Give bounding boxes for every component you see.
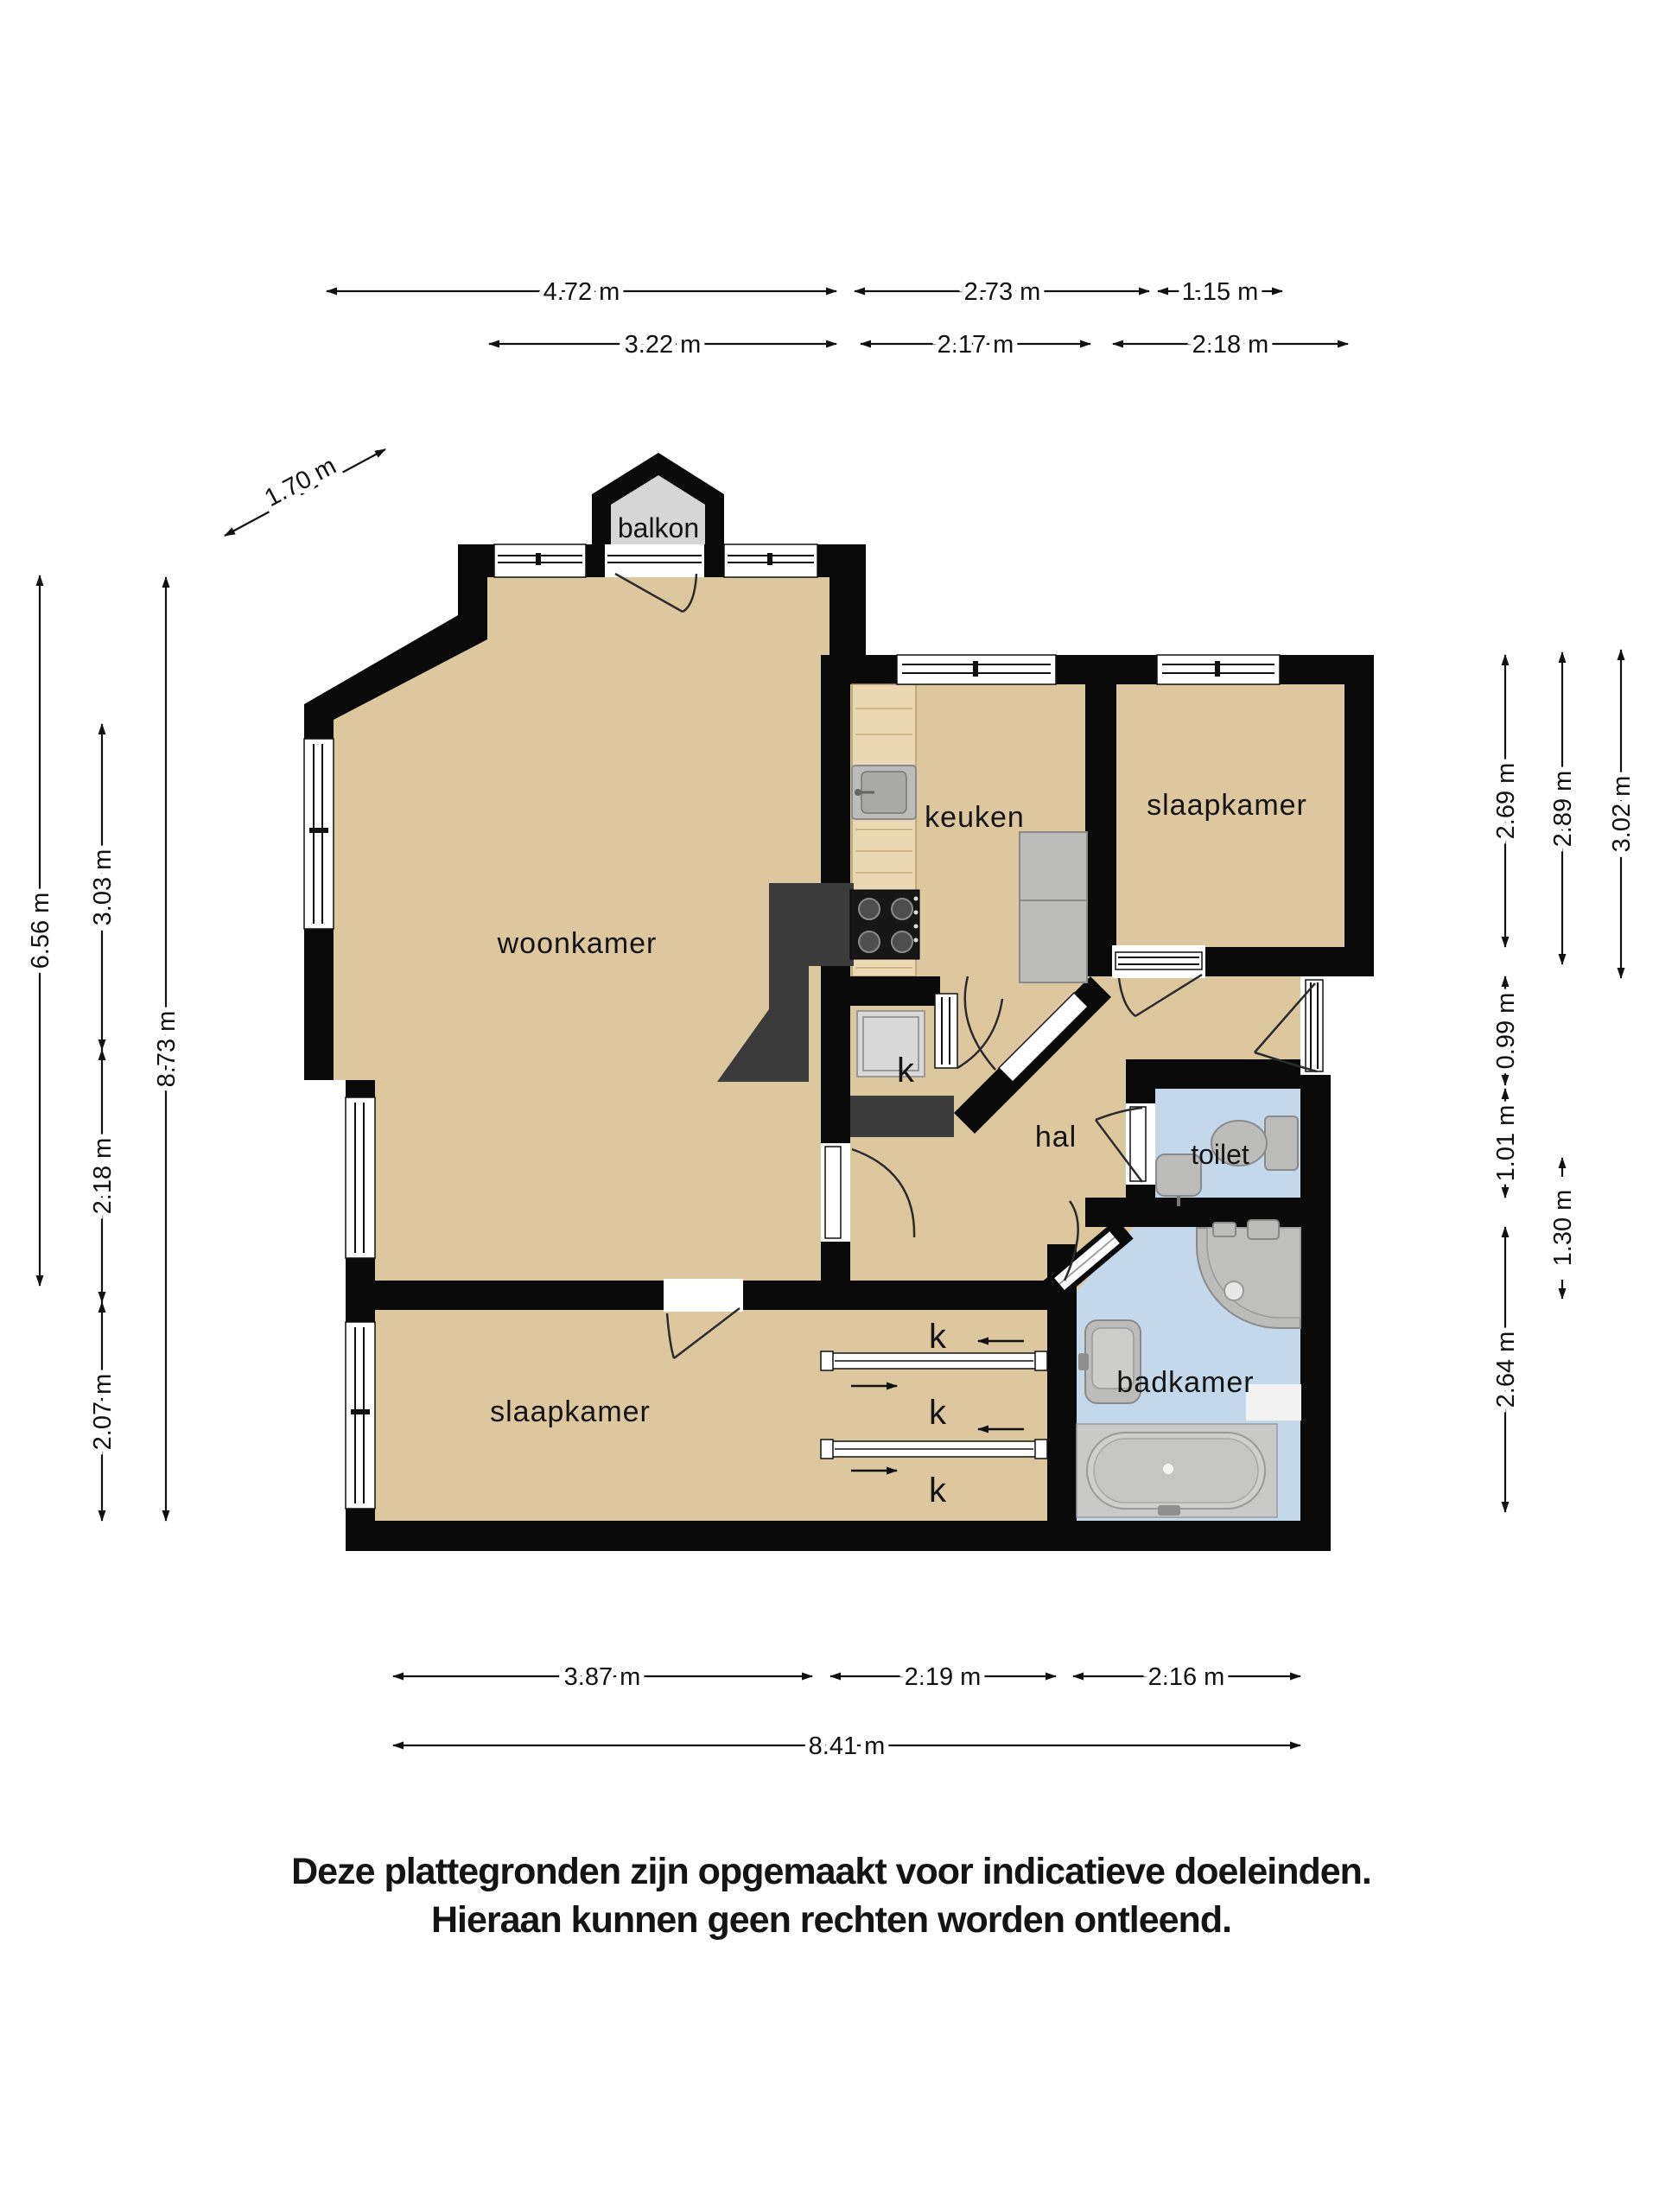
window-woonkamer-left xyxy=(304,739,334,929)
window-woonkamer-top-left xyxy=(494,544,586,577)
dimension-label: 2.64 m xyxy=(1492,1332,1520,1408)
floorplan-page: balkon woonkamer keuken slaapkamer hal t… xyxy=(0,0,1659,2212)
dimension-label: 3.03 m xyxy=(89,849,117,926)
dimension-label: 2.16 m xyxy=(1148,1663,1225,1691)
room-label-hal: hal xyxy=(1035,1121,1077,1154)
dimension-label: 2.07 m xyxy=(89,1374,117,1451)
dimension-label: 3.22 m xyxy=(625,331,702,359)
room-label-kast-2: k xyxy=(929,1394,947,1432)
duct-block xyxy=(850,1096,954,1137)
window-woonkamer-left-lower xyxy=(346,1097,375,1258)
kast-center-fixture xyxy=(857,1011,925,1077)
shower-drain xyxy=(1224,1281,1243,1300)
wall-keuken-slaapkamer xyxy=(1085,684,1116,947)
dimension-label: 2.89 m xyxy=(1549,771,1577,848)
disclaimer: Deze plattegronden zijn opgemaakt voor i… xyxy=(291,1851,1371,1941)
dimension-label: 2.17 m xyxy=(938,331,1014,359)
disclaimer-line-2: Hieraan kunnen geen rechten worden ontle… xyxy=(431,1899,1231,1941)
dimension-label: 2.73 m xyxy=(964,278,1041,306)
room-label-balkon: balkon xyxy=(618,512,699,543)
sliding-door-2 xyxy=(821,1440,1047,1459)
room-label-kast-center: k xyxy=(897,1052,915,1090)
dimension-label: 0.99 m xyxy=(1492,993,1520,1070)
disclaimer-line-1: Deze plattegronden zijn opgemaakt voor i… xyxy=(291,1851,1371,1892)
dimension-label: 2.19 m xyxy=(905,1663,982,1691)
bathtub-drain xyxy=(1163,1464,1173,1474)
dimension-label: 8.73 m xyxy=(153,1011,181,1088)
badkamer-sink-tap xyxy=(1078,1353,1089,1370)
dimension-label: 1.15 m xyxy=(1182,278,1259,306)
dimension-label: 8.41 m xyxy=(809,1732,886,1760)
refrigerator xyxy=(1020,832,1087,982)
room-label-slaapkamer-top: slaapkamer xyxy=(1147,789,1307,822)
bathtub-inner xyxy=(1094,1439,1258,1503)
room-label-kast-3: k xyxy=(929,1471,947,1510)
wall-toilet-top xyxy=(1126,1059,1331,1089)
dimension-label: 2.18 m xyxy=(1192,331,1269,359)
room-label-slaapkamer-bottom: slaapkamer xyxy=(490,1395,651,1428)
shower-mixer xyxy=(1213,1223,1236,1236)
dimension-label: 2.18 m xyxy=(89,1138,117,1215)
room-label-keuken: keuken xyxy=(925,801,1025,834)
dimension-label: 6.56 m xyxy=(27,893,54,969)
bathtub-faucet xyxy=(1158,1505,1180,1516)
shower-faucet xyxy=(1248,1220,1279,1239)
dimension-label: 4.72 m xyxy=(543,278,620,306)
window-slaapkamer-top xyxy=(1157,655,1280,684)
wall-toilet-badkamer xyxy=(1085,1198,1331,1227)
dimension-label: 3.02 m xyxy=(1608,776,1636,853)
window-keuken xyxy=(897,655,1056,684)
dimension-label: 1.30 m xyxy=(1549,1190,1577,1267)
room-label-toilet: toilet xyxy=(1191,1139,1249,1170)
room-label-badkamer: badkamer xyxy=(1116,1366,1254,1399)
dimension-label: 1.01 m xyxy=(1492,1105,1520,1182)
room-label-kast-1: k xyxy=(929,1318,947,1356)
room-label-woonkamer: woonkamer xyxy=(497,927,658,960)
shaft-box xyxy=(857,1011,925,1077)
dimension-label: 2.69 m xyxy=(1492,763,1520,840)
window-woonkamer-top-right xyxy=(724,544,817,577)
window-slaapkamer-bottom-left xyxy=(346,1322,375,1509)
wall-kast-top xyxy=(821,976,940,1006)
dimension-label: 3.87 m xyxy=(564,1663,641,1691)
floorplan-canvas: balkon woonkamer keuken slaapkamer hal t… xyxy=(0,0,1659,2212)
toilet-tank xyxy=(1265,1116,1298,1170)
dimension-label: 1.70 m xyxy=(260,452,340,512)
